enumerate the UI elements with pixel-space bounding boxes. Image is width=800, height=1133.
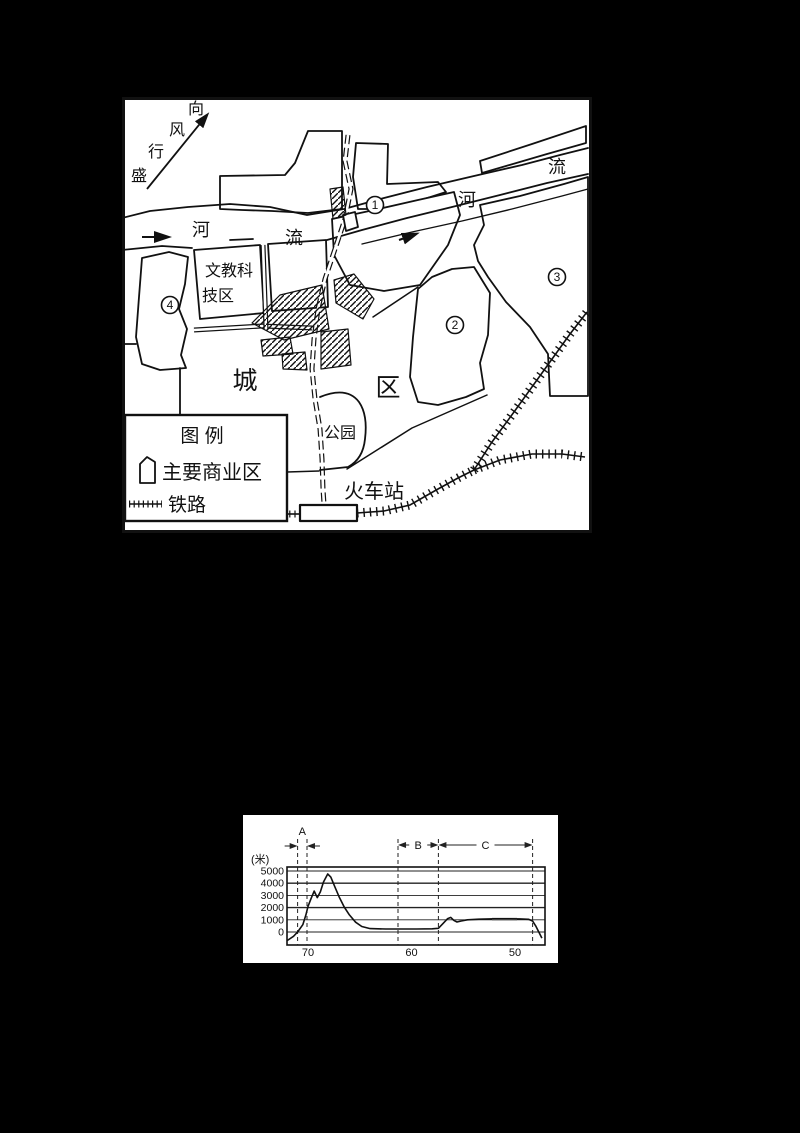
- district-2-area: [410, 267, 490, 405]
- wind-label-char: 行: [148, 143, 164, 161]
- region-label: B: [415, 840, 422, 852]
- elevation-profile-figure: ABC (米) 010002000300040005000 706050: [243, 815, 558, 963]
- river-label-west-liu: 流: [285, 228, 303, 248]
- commercial-patch: [330, 187, 346, 219]
- commercial-patch: [321, 329, 351, 369]
- wind-label-char: 向: [188, 100, 204, 118]
- commercial-area-icon: [140, 457, 155, 483]
- y-tick-label: 4000: [261, 878, 285, 890]
- district-4-number: 4: [167, 298, 174, 312]
- region-label: A: [299, 826, 307, 838]
- city-label-qu: 区: [375, 374, 400, 402]
- district-2-number: 2: [452, 318, 459, 332]
- city-label-cheng: 城: [232, 367, 257, 395]
- legend-commercial-label: 主要商业区: [162, 461, 262, 484]
- edu-zone-label-line2: 技区: [202, 287, 234, 305]
- y-axis-unit-label: (米): [251, 853, 269, 866]
- x-tick-label: 50: [509, 947, 521, 959]
- city-map-figure: 图 例 主要商业区 铁路 1 2 3 4 盛 行: [122, 97, 592, 533]
- x-tick-label: 60: [405, 947, 417, 959]
- commercial-patch: [282, 352, 307, 370]
- district-4-area: [136, 252, 188, 370]
- wind-label-char: 盛: [131, 167, 147, 185]
- river-label-east-liu: 流: [548, 157, 566, 177]
- legend-connector-road: [287, 471, 319, 472]
- park-label: 公园: [324, 425, 356, 442]
- scanned-exam-page: 图 例 主要商业区 铁路 1 2 3 4 盛 行: [0, 0, 800, 1133]
- river-channel-dash: [230, 239, 253, 240]
- river-label-east-he: 河: [458, 190, 476, 210]
- station-label: 火车站: [344, 480, 404, 503]
- station-rect: [300, 505, 357, 521]
- legend-railway-label: 铁路: [168, 494, 206, 516]
- legend-title: 图 例: [180, 425, 223, 447]
- region-label: C: [482, 840, 490, 852]
- legend: 图 例 主要商业区 铁路: [125, 415, 287, 521]
- city-map-svg: 图 例 主要商业区 铁路 1 2 3 4 盛 行: [122, 97, 592, 533]
- elevation-profile-svg: ABC (米) 010002000300040005000 706050: [243, 815, 558, 963]
- y-tick-label: 2000: [261, 902, 285, 914]
- edu-zone-box: [194, 245, 264, 319]
- edu-zone-label-line1: 文教科: [205, 262, 253, 280]
- y-tick-label: 1000: [261, 914, 285, 926]
- y-tick-label: 5000: [261, 866, 285, 878]
- district-3-number: 3: [554, 270, 561, 284]
- x-tick-label: 70: [302, 947, 314, 959]
- chart-background: [243, 815, 558, 963]
- district-1-number: 1: [372, 198, 379, 212]
- y-tick-label: 0: [278, 927, 284, 939]
- y-tick-label: 3000: [261, 890, 285, 902]
- wind-label-char: 风: [169, 122, 185, 139]
- river-label-west-he: 河: [192, 220, 210, 240]
